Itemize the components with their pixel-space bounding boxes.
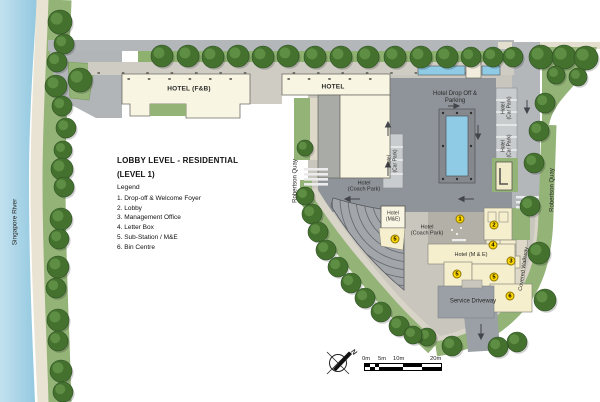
gap-walk	[250, 66, 282, 104]
carpark-stalls-east	[496, 88, 517, 162]
legend-item: 5. Sub-Station / M&E	[117, 233, 238, 243]
legend-heading: Legend	[117, 184, 238, 191]
marker-5: 5	[391, 235, 400, 244]
marker-2: 2	[490, 221, 499, 230]
tree-icon	[53, 382, 75, 402]
hotel-me-box-building	[379, 206, 405, 250]
legend-item: 4. Letter Box	[117, 223, 238, 233]
marker-3: 3	[507, 257, 516, 266]
marker-5: 5	[453, 270, 462, 279]
east-stair-feature	[492, 158, 518, 192]
marker-6: 6	[506, 292, 515, 301]
tree-icon	[507, 332, 529, 354]
tree-icon	[488, 337, 510, 359]
marker-5: 5	[490, 273, 499, 282]
hotel-fnb-building	[122, 74, 250, 118]
scale-tick: 20m	[430, 356, 441, 362]
site-plan-canvas	[0, 0, 600, 402]
marker-4: 4	[489, 241, 498, 250]
legend-item: 6. Bin Centre	[117, 243, 238, 253]
scale-tick: 0m	[362, 356, 370, 362]
scale-bar-ticks: 0m 5m 10m 20m	[364, 356, 450, 363]
north-arrow	[327, 352, 352, 375]
legend-panel: LOBBY LEVEL - RESIDENTIAL (LEVEL 1) Lege…	[117, 156, 238, 252]
central-pool	[439, 109, 475, 183]
marker-1: 1	[456, 215, 465, 224]
tree-icon	[534, 289, 558, 313]
scale-tick: 5m	[378, 356, 386, 362]
legend-title-line2: (LEVEL 1)	[117, 170, 238, 179]
legend-item: 2. Lobby	[117, 204, 238, 214]
scale-bar: 0m 5m 10m 20m	[364, 356, 450, 371]
site-plan: Singapore River Robertson Quay Robertson…	[0, 0, 600, 402]
scale-bar-graphic	[364, 363, 442, 371]
scale-tick: 10m	[393, 356, 404, 362]
legend-item: 1. Drop-off & Welcome Foyer	[117, 194, 238, 204]
legend-item: 3. Management Office	[117, 213, 238, 223]
legend-title-line1: LOBBY LEVEL - RESIDENTIAL	[117, 156, 238, 165]
